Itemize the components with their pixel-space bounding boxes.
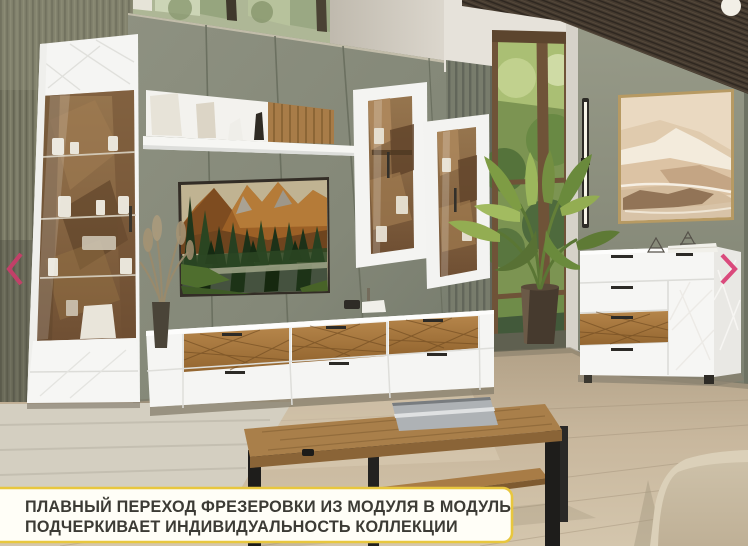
svg-text:ПЛАВНЫЙ ПЕРЕХОД ФРЕЗЕРОВКИ ИЗ: ПЛАВНЫЙ ПЕРЕХОД ФРЕЗЕРОВКИ ИЗ МОДУЛЯ В М… [25,497,511,516]
svg-text:ПОДЧЕРКИВАЕТ ИНДИВИДУАЛЬНОСТЬ: ПОДЧЕРКИВАЕТ ИНДИВИДУАЛЬНОСТЬ КОЛЛЕКЦИИ [25,518,458,536]
